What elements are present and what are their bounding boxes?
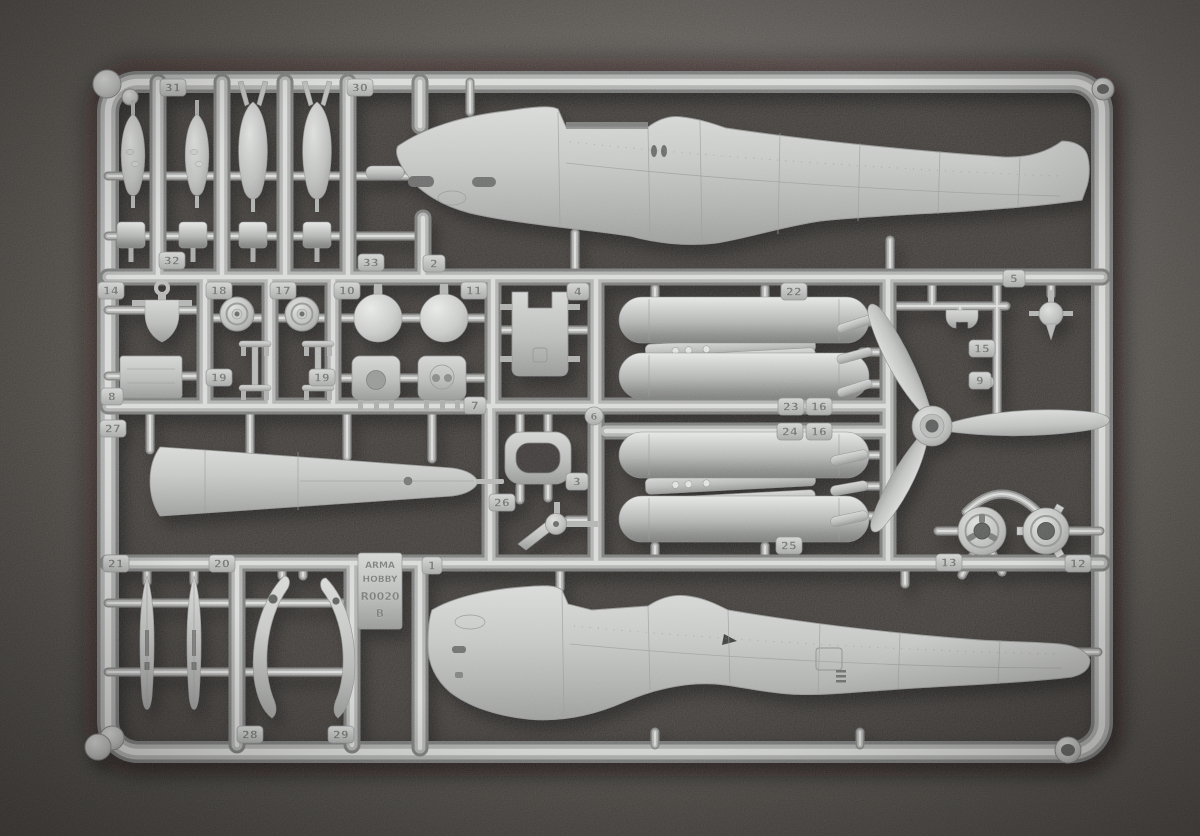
photo-model-kit-sprue: ARMA HOBBY R0020 B 31 30 32 33 2 14 18 1…	[0, 0, 1200, 836]
sprue-photo: ARMA HOBBY R0020 B 31 30 32 33 2 14 18 1…	[0, 0, 1200, 836]
vignette	[0, 0, 1200, 836]
